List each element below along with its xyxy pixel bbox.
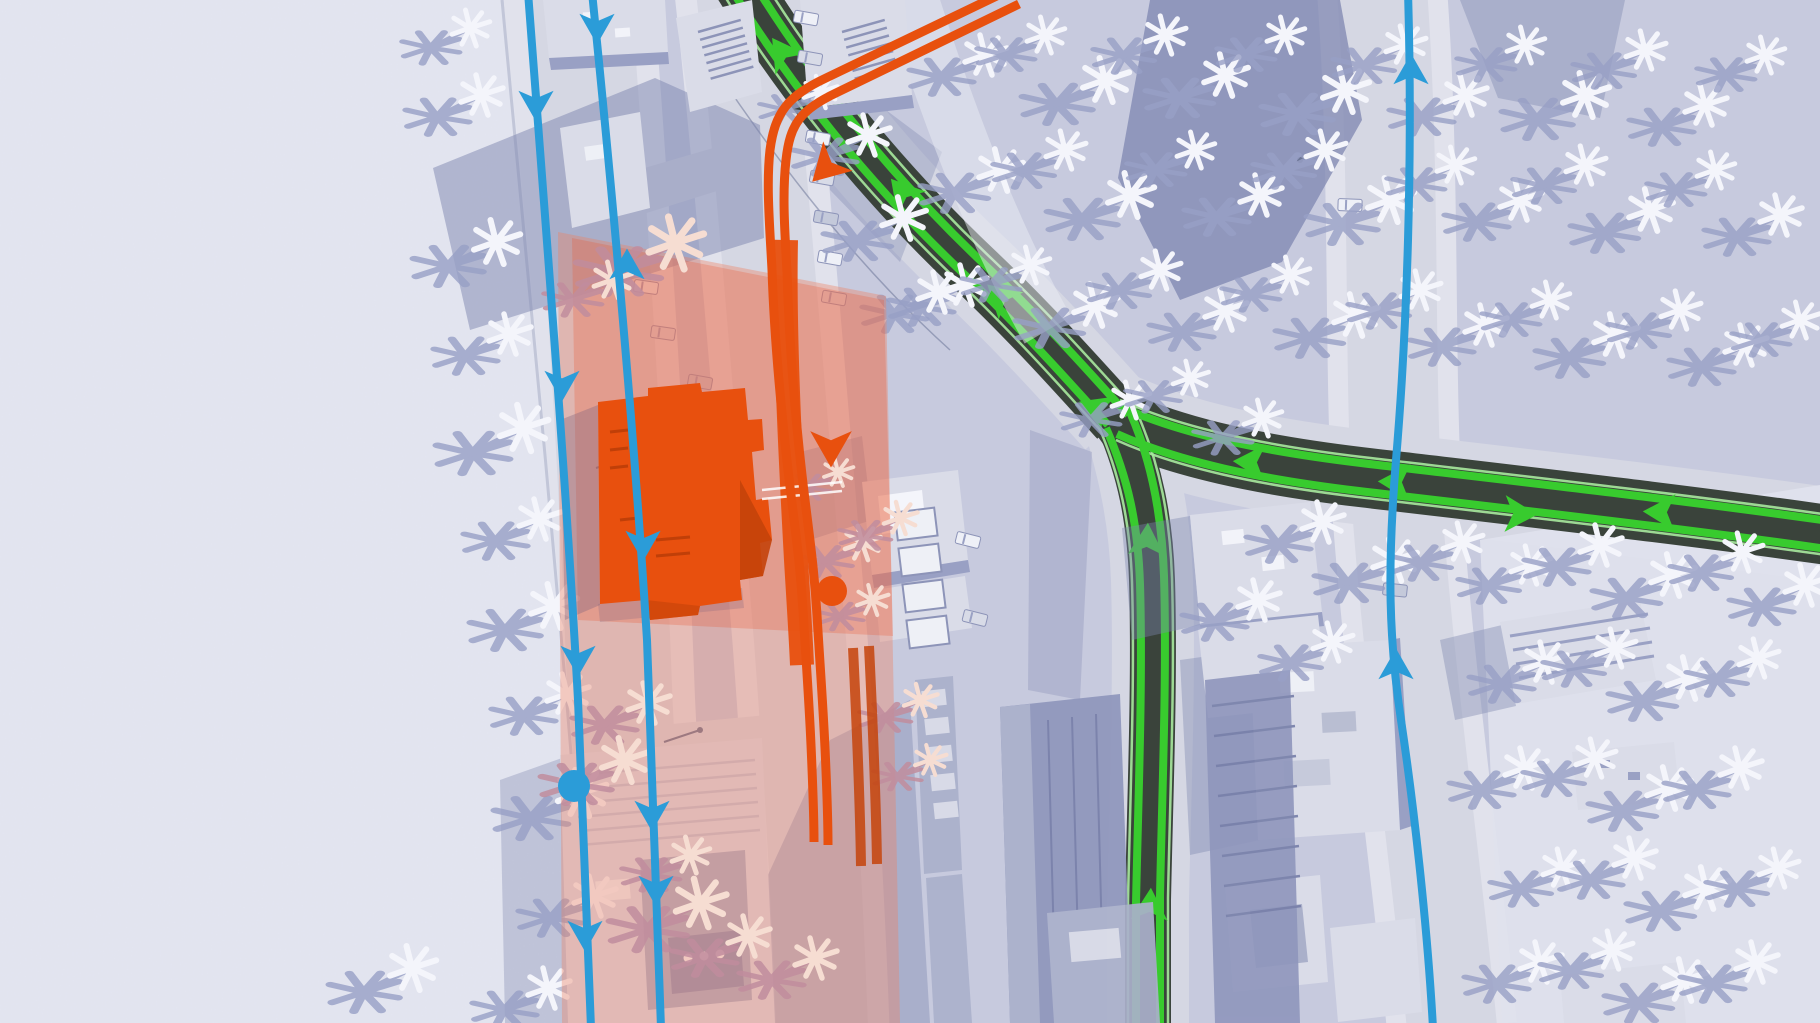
orange-route-stop[interactable] [817, 576, 847, 606]
station-building[interactable] [676, 0, 762, 112]
game-viewport[interactable] [0, 0, 1820, 1023]
selected-building-highlight[interactable] [560, 383, 772, 622]
tower-building[interactable] [1205, 670, 1301, 1023]
transit-stop-node[interactable] [558, 770, 590, 802]
car [1382, 583, 1407, 597]
building-shadow [1122, 516, 1200, 640]
building[interactable] [543, 0, 669, 70]
